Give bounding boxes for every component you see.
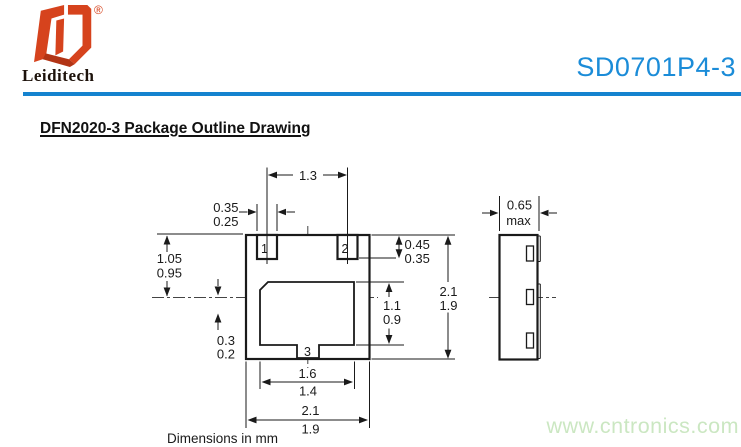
svg-text:1.3: 1.3 — [299, 168, 317, 183]
svg-text:0.9: 0.9 — [383, 312, 401, 327]
svg-text:0.35: 0.35 — [405, 251, 430, 266]
dim-center-offset: 0.3 0.2 — [215, 279, 235, 362]
svg-text:0.35: 0.35 — [213, 200, 238, 215]
svg-text:1.05: 1.05 — [157, 251, 182, 266]
svg-text:max: max — [506, 213, 531, 228]
svg-text:1.9: 1.9 — [439, 298, 457, 313]
svg-text:1.1: 1.1 — [383, 298, 401, 313]
svg-text:0.2: 0.2 — [217, 347, 235, 362]
svg-text:0.25: 0.25 — [213, 214, 238, 229]
dim-pad-depth: 0.45 0.35 — [359, 235, 455, 266]
dim-top-to-center: 1.05 0.95 — [157, 234, 243, 297]
svg-text:0.95: 0.95 — [157, 266, 182, 281]
datasheet-page: ® Leiditech SD0701P4-3 DFN2020-3 Package… — [0, 0, 741, 447]
svg-text:0.45: 0.45 — [405, 237, 430, 252]
dim-pad-width: 0.35 0.25 — [213, 200, 295, 231]
svg-text:1.9: 1.9 — [301, 422, 319, 437]
package-outline-drawing: 1 2 3 1.3 0.35 0.25 1.05 0 — [0, 0, 741, 447]
watermark: www.cntronics.com — [547, 414, 740, 439]
svg-text:1.4: 1.4 — [299, 384, 317, 399]
front-view: 1 2 3 — [246, 235, 370, 359]
svg-text:1.6: 1.6 — [298, 366, 316, 381]
pin-3-label: 3 — [304, 345, 311, 359]
svg-text:2.1: 2.1 — [439, 284, 457, 299]
units-note: Dimensions in mm — [167, 431, 278, 446]
dim-epad-width: 1.6 1.4 — [260, 362, 355, 399]
svg-text:2.1: 2.1 — [301, 403, 319, 418]
dim-thickness: 0.65 max — [482, 196, 557, 231]
svg-text:0.65: 0.65 — [507, 198, 532, 213]
side-view — [500, 235, 541, 360]
